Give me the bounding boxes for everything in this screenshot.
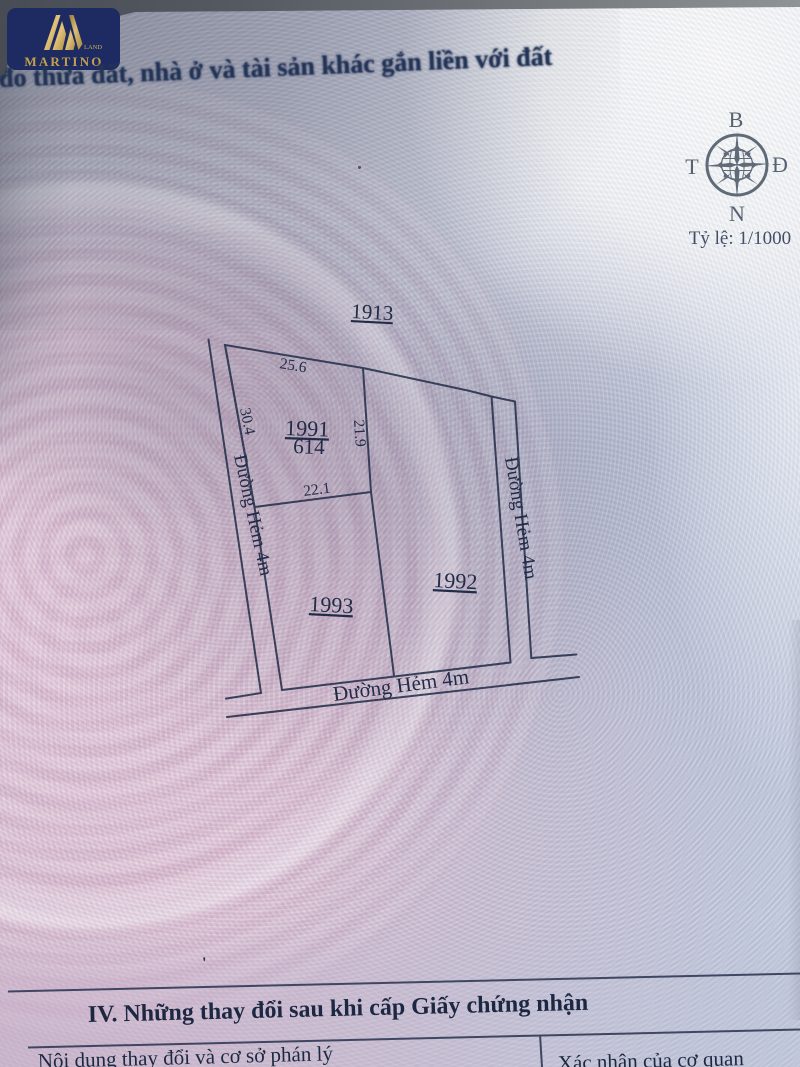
svg-text:1992: 1992 — [433, 567, 478, 594]
svg-text:Đường Hẻm 4m: Đường Hẻm 4m — [229, 453, 276, 579]
svg-text:1913: 1913 — [351, 299, 394, 325]
svg-text:30.4: 30.4 — [236, 406, 258, 436]
svg-text:25.6: 25.6 — [278, 355, 308, 376]
svg-text:614: 614 — [293, 434, 326, 459]
svg-text:IV. Những thay đổi sau khi cấp: IV. Những thay đổi sau khi cấp Giấy chứn… — [88, 990, 589, 1028]
svg-text:Đường Hẻm 4m: Đường Hẻm 4m — [500, 455, 541, 581]
svg-text:22.1: 22.1 — [302, 480, 331, 500]
svg-text:Đường Hẻm 4m: Đường Hẻm 4m — [332, 664, 471, 706]
svg-text:Xác nhận của cơ quan: Xác nhận của cơ quan — [558, 1046, 745, 1067]
svg-text:': ' — [202, 955, 206, 972]
svg-text:1993: 1993 — [309, 591, 354, 618]
svg-text:Nội dung thay đổi và cơ sở phá: Nội dung thay đổi và cơ sở phán lý — [38, 1041, 334, 1067]
svg-text:21.9: 21.9 — [350, 419, 369, 447]
